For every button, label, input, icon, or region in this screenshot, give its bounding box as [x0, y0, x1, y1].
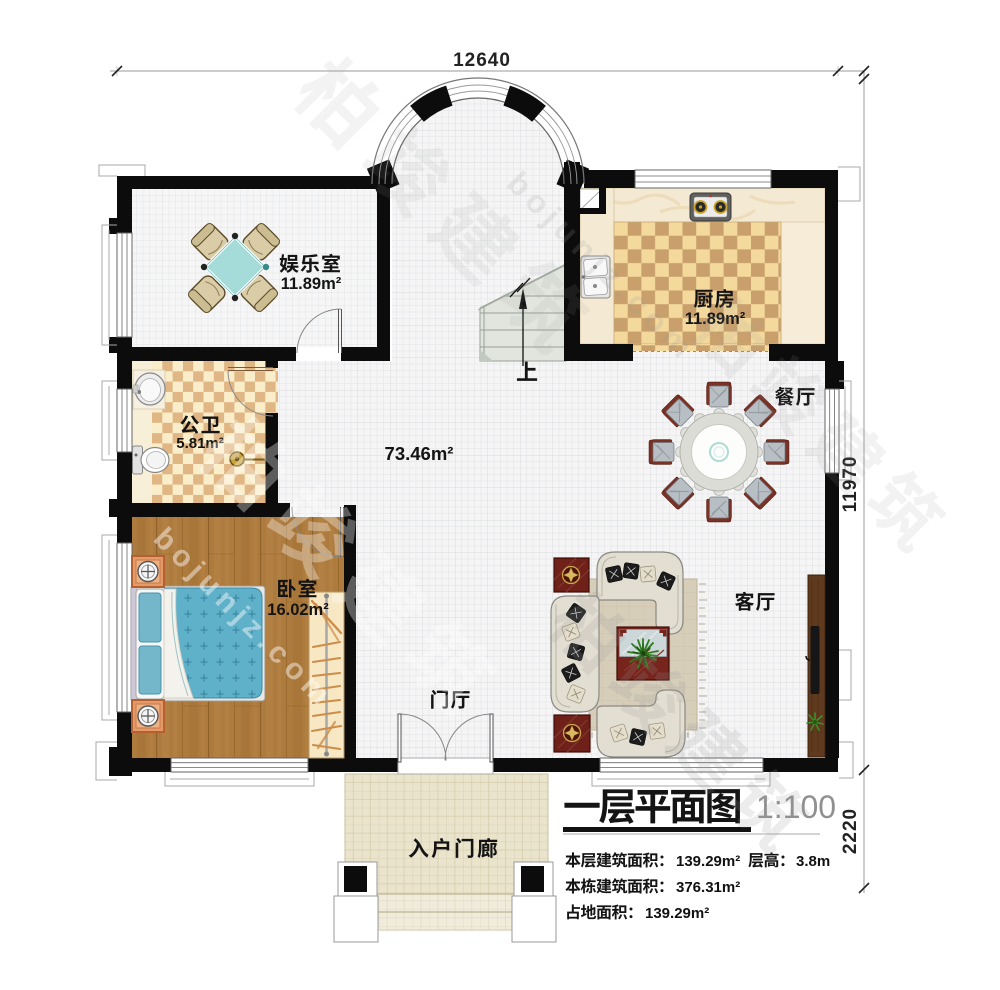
svg-text:73.46m²: 73.46m² [385, 443, 454, 464]
svg-text:12640: 12640 [453, 50, 511, 71]
svg-text:376.31m²: 376.31m² [676, 879, 740, 896]
svg-text:3.8m: 3.8m [796, 853, 830, 870]
svg-text:139.29m²: 139.29m² [676, 853, 740, 870]
svg-text:11.89m²: 11.89m² [281, 275, 342, 293]
svg-text:2220: 2220 [840, 808, 861, 854]
svg-text:139.29m²: 139.29m² [645, 905, 709, 922]
svg-text:16.02m²: 16.02m² [267, 601, 329, 619]
